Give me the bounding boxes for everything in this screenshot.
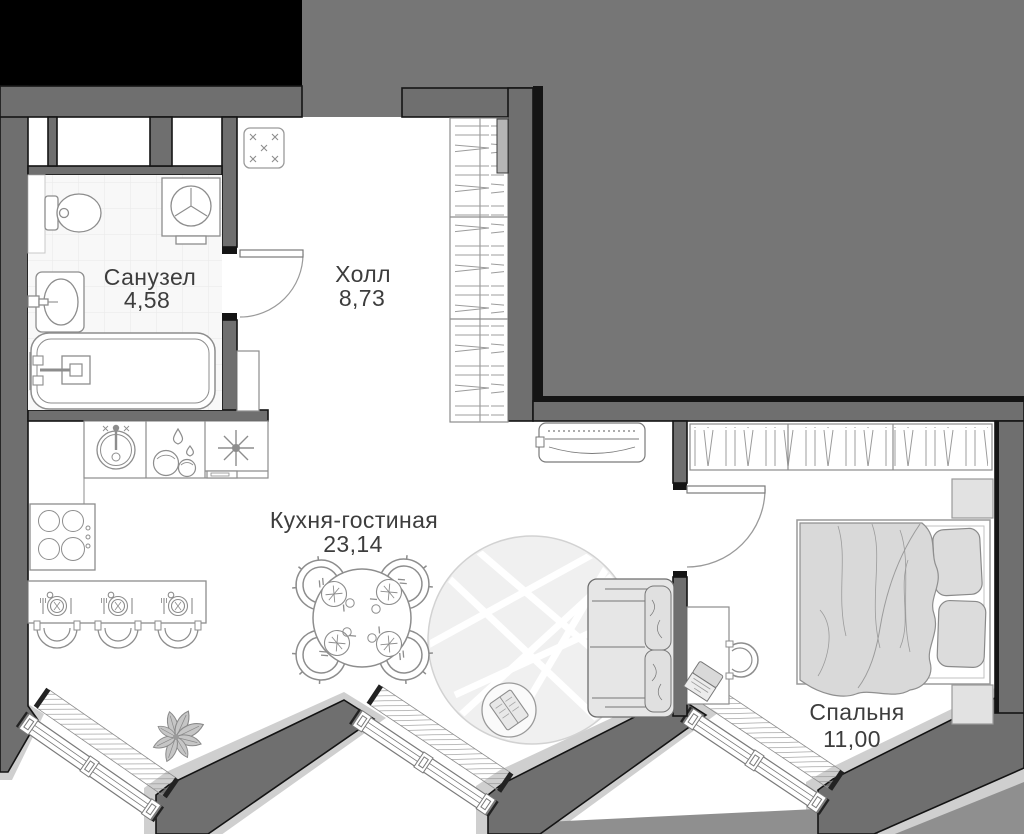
bar-stool <box>34 621 80 648</box>
room-label-hall: Холл <box>335 261 391 287</box>
desk-chair <box>726 641 758 679</box>
room-area-hall: 8,73 <box>339 285 385 311</box>
bar-counter <box>28 581 206 648</box>
bedroom-wardrobe <box>690 424 992 470</box>
room-area-kitchen-living: 23,14 <box>323 531 383 557</box>
bed <box>797 520 990 696</box>
sofa <box>588 579 674 717</box>
bar-stool <box>95 621 141 648</box>
bathtub <box>30 333 215 409</box>
bar-stool <box>155 621 201 648</box>
ac-unit <box>536 423 645 462</box>
washing-machine <box>162 178 220 244</box>
pillow <box>937 600 986 668</box>
blanket <box>800 523 938 696</box>
nightstand <box>952 479 993 518</box>
neighbor-unit <box>302 0 1024 396</box>
bathroom-door <box>240 250 303 317</box>
hall-wardrobe <box>450 118 508 422</box>
toilet <box>45 194 101 232</box>
entrance-mat <box>244 128 284 168</box>
pillow <box>932 528 982 596</box>
floor-plan-canvas: Санузел 4,58 Холл 8,73 Кухня-гостиная 23… <box>0 0 1024 834</box>
plant <box>152 709 206 763</box>
dining-set <box>283 546 443 693</box>
cooktop <box>30 504 95 570</box>
bathroom-sink <box>28 272 84 332</box>
room-label-kitchen-living: Кухня-гостиная <box>270 507 438 533</box>
pouf <box>482 683 536 737</box>
kitchen <box>28 421 268 648</box>
room-area-bathroom: 4,58 <box>124 287 170 313</box>
bathroom-niche <box>28 175 45 253</box>
room-label-bedroom: Спальня <box>809 699 904 725</box>
blackout-area <box>0 0 302 86</box>
hall-cabinet <box>237 351 259 411</box>
floor-plan: Санузел 4,58 Холл 8,73 Кухня-гостиная 23… <box>0 0 1024 834</box>
bedroom-door <box>687 486 765 567</box>
room-area-bedroom: 11,00 <box>823 726 881 752</box>
nightstand <box>952 685 993 724</box>
